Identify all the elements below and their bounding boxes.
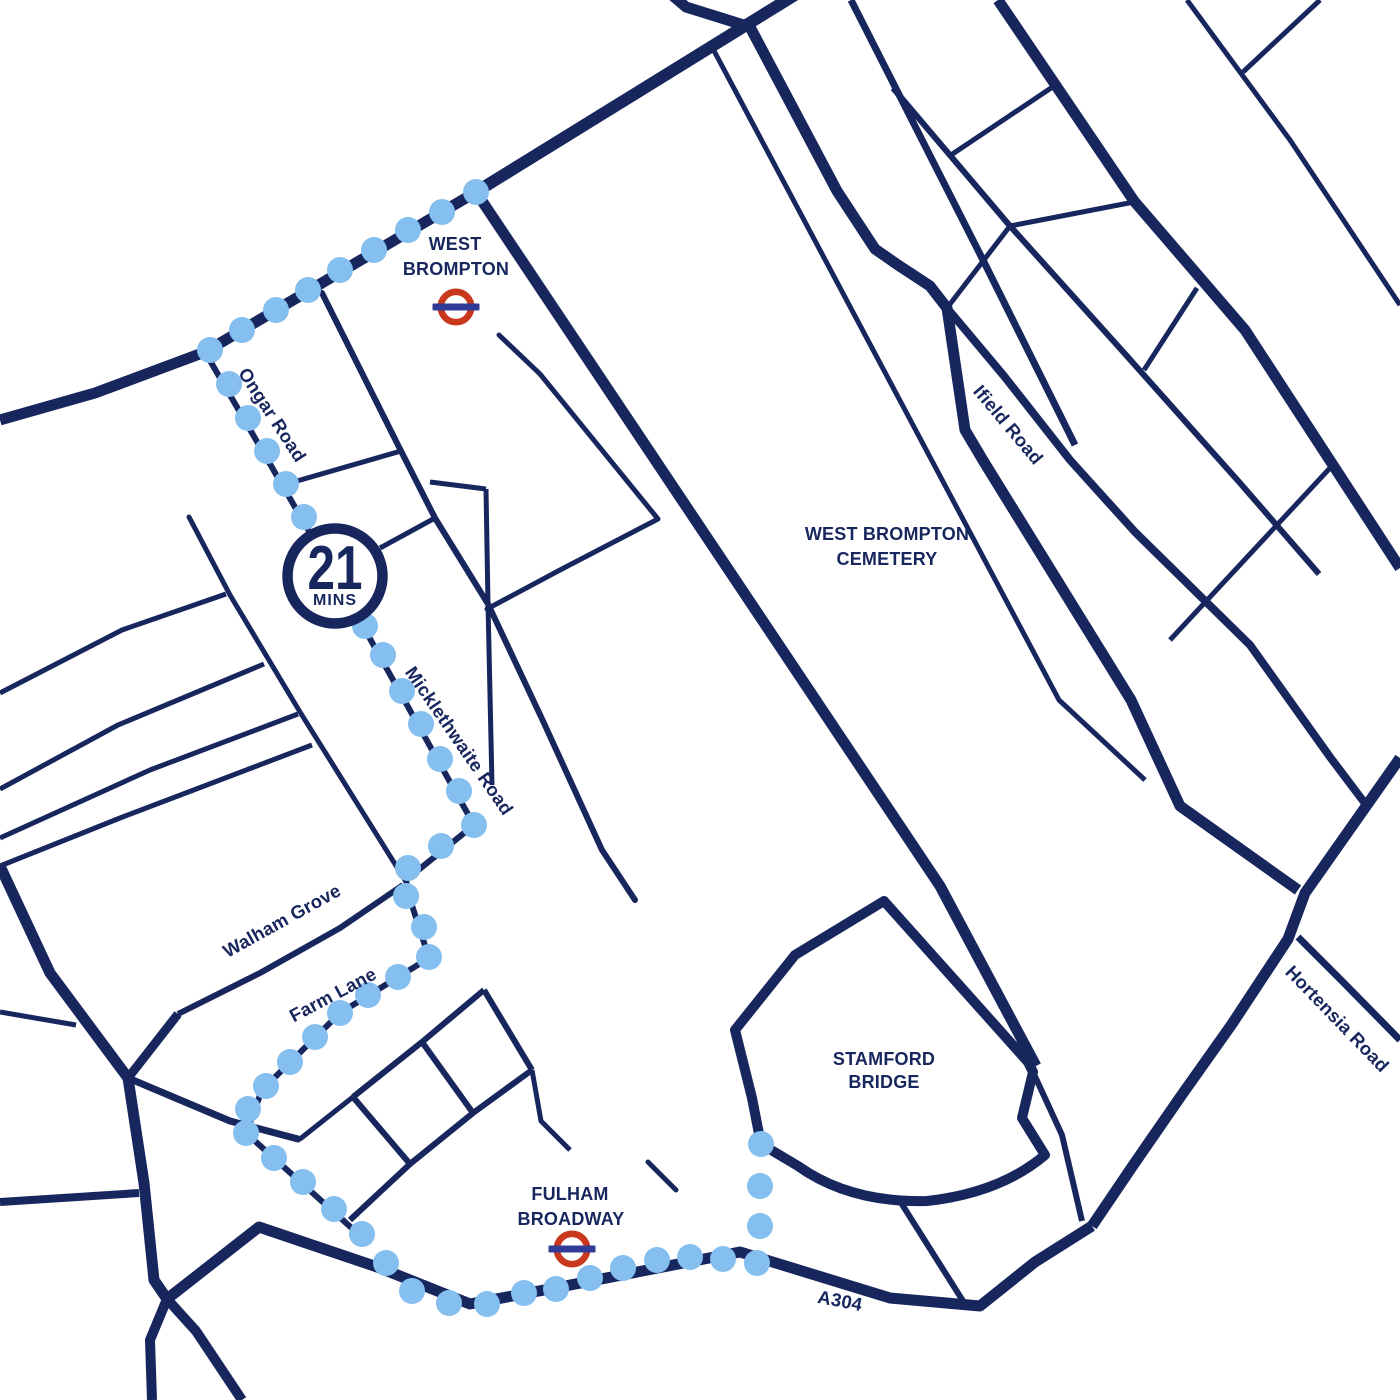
svg-text:WEST: WEST bbox=[429, 234, 482, 254]
svg-text:FULHAM: FULHAM bbox=[531, 1184, 608, 1204]
svg-text:WEST BROMPTON: WEST BROMPTON bbox=[805, 524, 969, 544]
svg-text:MINS: MINS bbox=[313, 592, 357, 609]
svg-text:BROMPTON: BROMPTON bbox=[403, 259, 509, 279]
svg-text:STAMFORD: STAMFORD bbox=[833, 1049, 935, 1069]
svg-text:BROADWAY: BROADWAY bbox=[518, 1209, 625, 1229]
svg-text:CEMETERY: CEMETERY bbox=[837, 549, 938, 569]
svg-text:BRIDGE: BRIDGE bbox=[848, 1072, 919, 1092]
